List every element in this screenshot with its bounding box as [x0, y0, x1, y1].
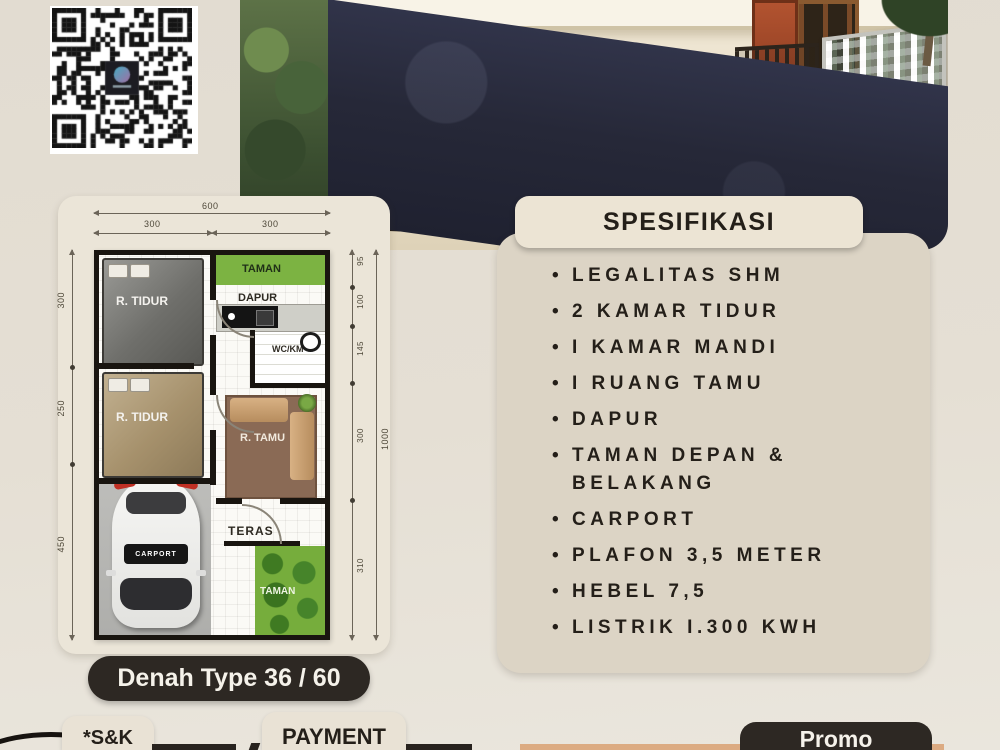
- door-arc: [216, 300, 254, 338]
- wall-segment: [250, 330, 255, 388]
- dim-right-1: 95: [356, 256, 365, 266]
- living-label: R. TAMU: [240, 432, 285, 444]
- wall-segment: [94, 478, 216, 484]
- floor-plan: TAMAN DAPUR WC/KM R. TIDUR R. TIDUR R. T…: [94, 250, 330, 640]
- spec-item: •DAPUR: [552, 406, 912, 434]
- dim-top-right: 300: [262, 219, 279, 229]
- plan-caption-badge: Denah Type 36 / 60: [88, 656, 370, 701]
- bedroom2-label: R. TIDUR: [116, 410, 168, 424]
- spec-item: •TAMAN DEPAN & BELAKANG: [552, 442, 912, 498]
- spec-title: SPESIFIKASI: [603, 208, 775, 237]
- dim-top-left: 300: [144, 219, 161, 229]
- dim-left-1: 300: [56, 292, 66, 309]
- dim-right-4: 300: [356, 428, 365, 443]
- spec-item: •CARPORT: [552, 506, 912, 534]
- payment-label: PAYMENT: [282, 724, 386, 750]
- garden-top-label: TAMAN: [242, 263, 281, 275]
- dim-line: [94, 213, 330, 214]
- dim-right-2: 100: [356, 294, 365, 309]
- spec-item: •PLAFON 3,5 METER: [552, 542, 912, 570]
- spec-item: •LEGALITAS SHM: [552, 262, 912, 290]
- dim-mark: [70, 365, 75, 370]
- wall-segment: [216, 498, 242, 504]
- wall-segment: [325, 250, 330, 640]
- bedroom1-label: R. TIDUR: [116, 294, 168, 308]
- door-arc: [242, 504, 282, 544]
- dim-top-total: 600: [202, 201, 219, 211]
- car-top-view: CARPORT: [112, 478, 200, 628]
- dim-left-3: 450: [56, 536, 66, 553]
- sofa: [290, 412, 314, 480]
- spec-item: •I KAMAR MANDI: [552, 334, 912, 362]
- spec-item: •HEBEL 7,5: [552, 578, 912, 606]
- wall-segment: [250, 383, 330, 388]
- payment-button[interactable]: PAYMENT: [262, 712, 406, 750]
- bed-bedroom1: [102, 258, 204, 366]
- footer-divider: [152, 744, 236, 750]
- wall-segment: [280, 498, 330, 504]
- footer-divider: [406, 744, 472, 750]
- terms-button[interactable]: *S&K: [62, 716, 154, 750]
- wall-segment: [94, 363, 194, 369]
- qr-code-container: [50, 6, 198, 154]
- wall-segment: [210, 250, 216, 300]
- dim-line: [72, 250, 73, 640]
- palm-leaves: [874, 0, 948, 42]
- dim-mark: [350, 324, 355, 329]
- qr-code[interactable]: [52, 8, 192, 148]
- plant-icon: [298, 394, 316, 412]
- terms-label: *S&K: [83, 727, 133, 750]
- dim-line: [212, 233, 330, 234]
- spec-header: SPESIFIKASI: [515, 196, 863, 248]
- bathroom-label: WC/KM: [272, 344, 304, 354]
- dim-height-total: 1000: [380, 428, 390, 450]
- bed-bedroom2: [102, 372, 204, 478]
- plan-caption-text: Denah Type 36 / 60: [117, 664, 340, 693]
- promo-label: Promo: [800, 726, 873, 750]
- carport-badge: CARPORT: [124, 544, 188, 564]
- footer-marker: [249, 743, 261, 750]
- wall-segment: [94, 635, 330, 640]
- promo-button[interactable]: Promo: [740, 722, 932, 750]
- spec-item: •LISTRIK I.300 KWH: [552, 614, 912, 642]
- dim-right-5: 310: [356, 558, 365, 573]
- dim-left-2: 250: [56, 400, 66, 417]
- dim-mark: [70, 462, 75, 467]
- door-arc: [216, 395, 254, 433]
- toilet-icon: [300, 332, 321, 352]
- wall-segment: [210, 430, 216, 485]
- garden-bottom-label: TAMAN: [260, 586, 295, 597]
- dim-mark: [350, 381, 355, 386]
- dim-line: [94, 233, 212, 234]
- dim-mark: [350, 498, 355, 503]
- dim-mark: [350, 285, 355, 290]
- dim-line: [376, 250, 377, 640]
- flyer-page: 600 300 300 300 250 450 95 100 145 300 3…: [0, 0, 1000, 750]
- dim-line: [352, 250, 353, 640]
- spec-list: •LEGALITAS SHM•2 KAMAR TIDUR•I KAMAR MAN…: [552, 262, 912, 650]
- wall-segment: [210, 335, 216, 395]
- wall-segment: [94, 250, 99, 640]
- spec-item: •I RUANG TAMU: [552, 370, 912, 398]
- dim-right-3: 145: [356, 341, 365, 356]
- spec-item: •2 KAMAR TIDUR: [552, 298, 912, 326]
